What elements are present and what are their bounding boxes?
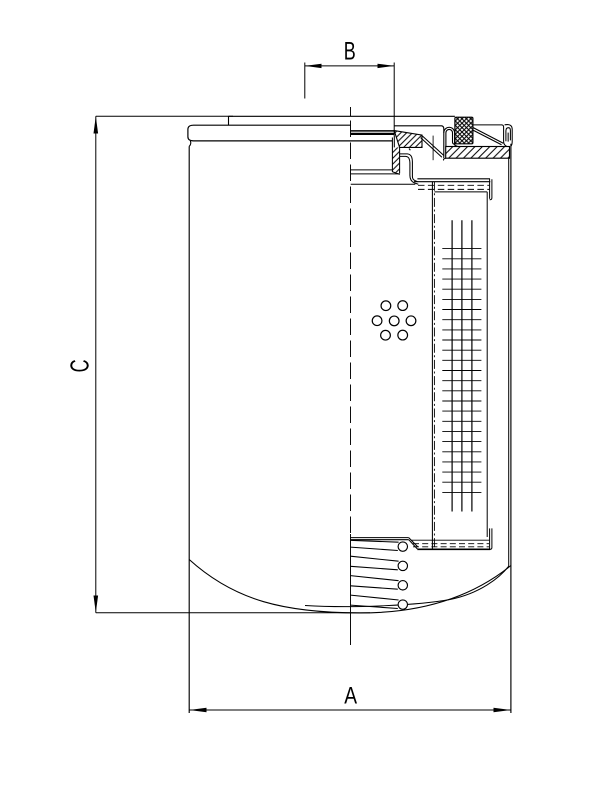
svg-text:C: C <box>67 359 95 372</box>
svg-text:A: A <box>344 683 357 710</box>
svg-text:B: B <box>344 39 356 66</box>
